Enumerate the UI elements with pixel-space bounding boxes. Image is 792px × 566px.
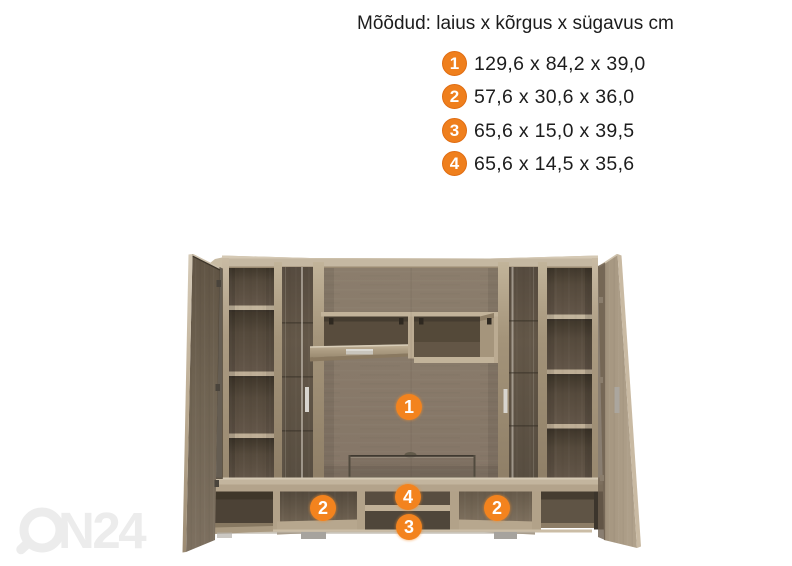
svg-text:N24: N24: [58, 502, 147, 559]
